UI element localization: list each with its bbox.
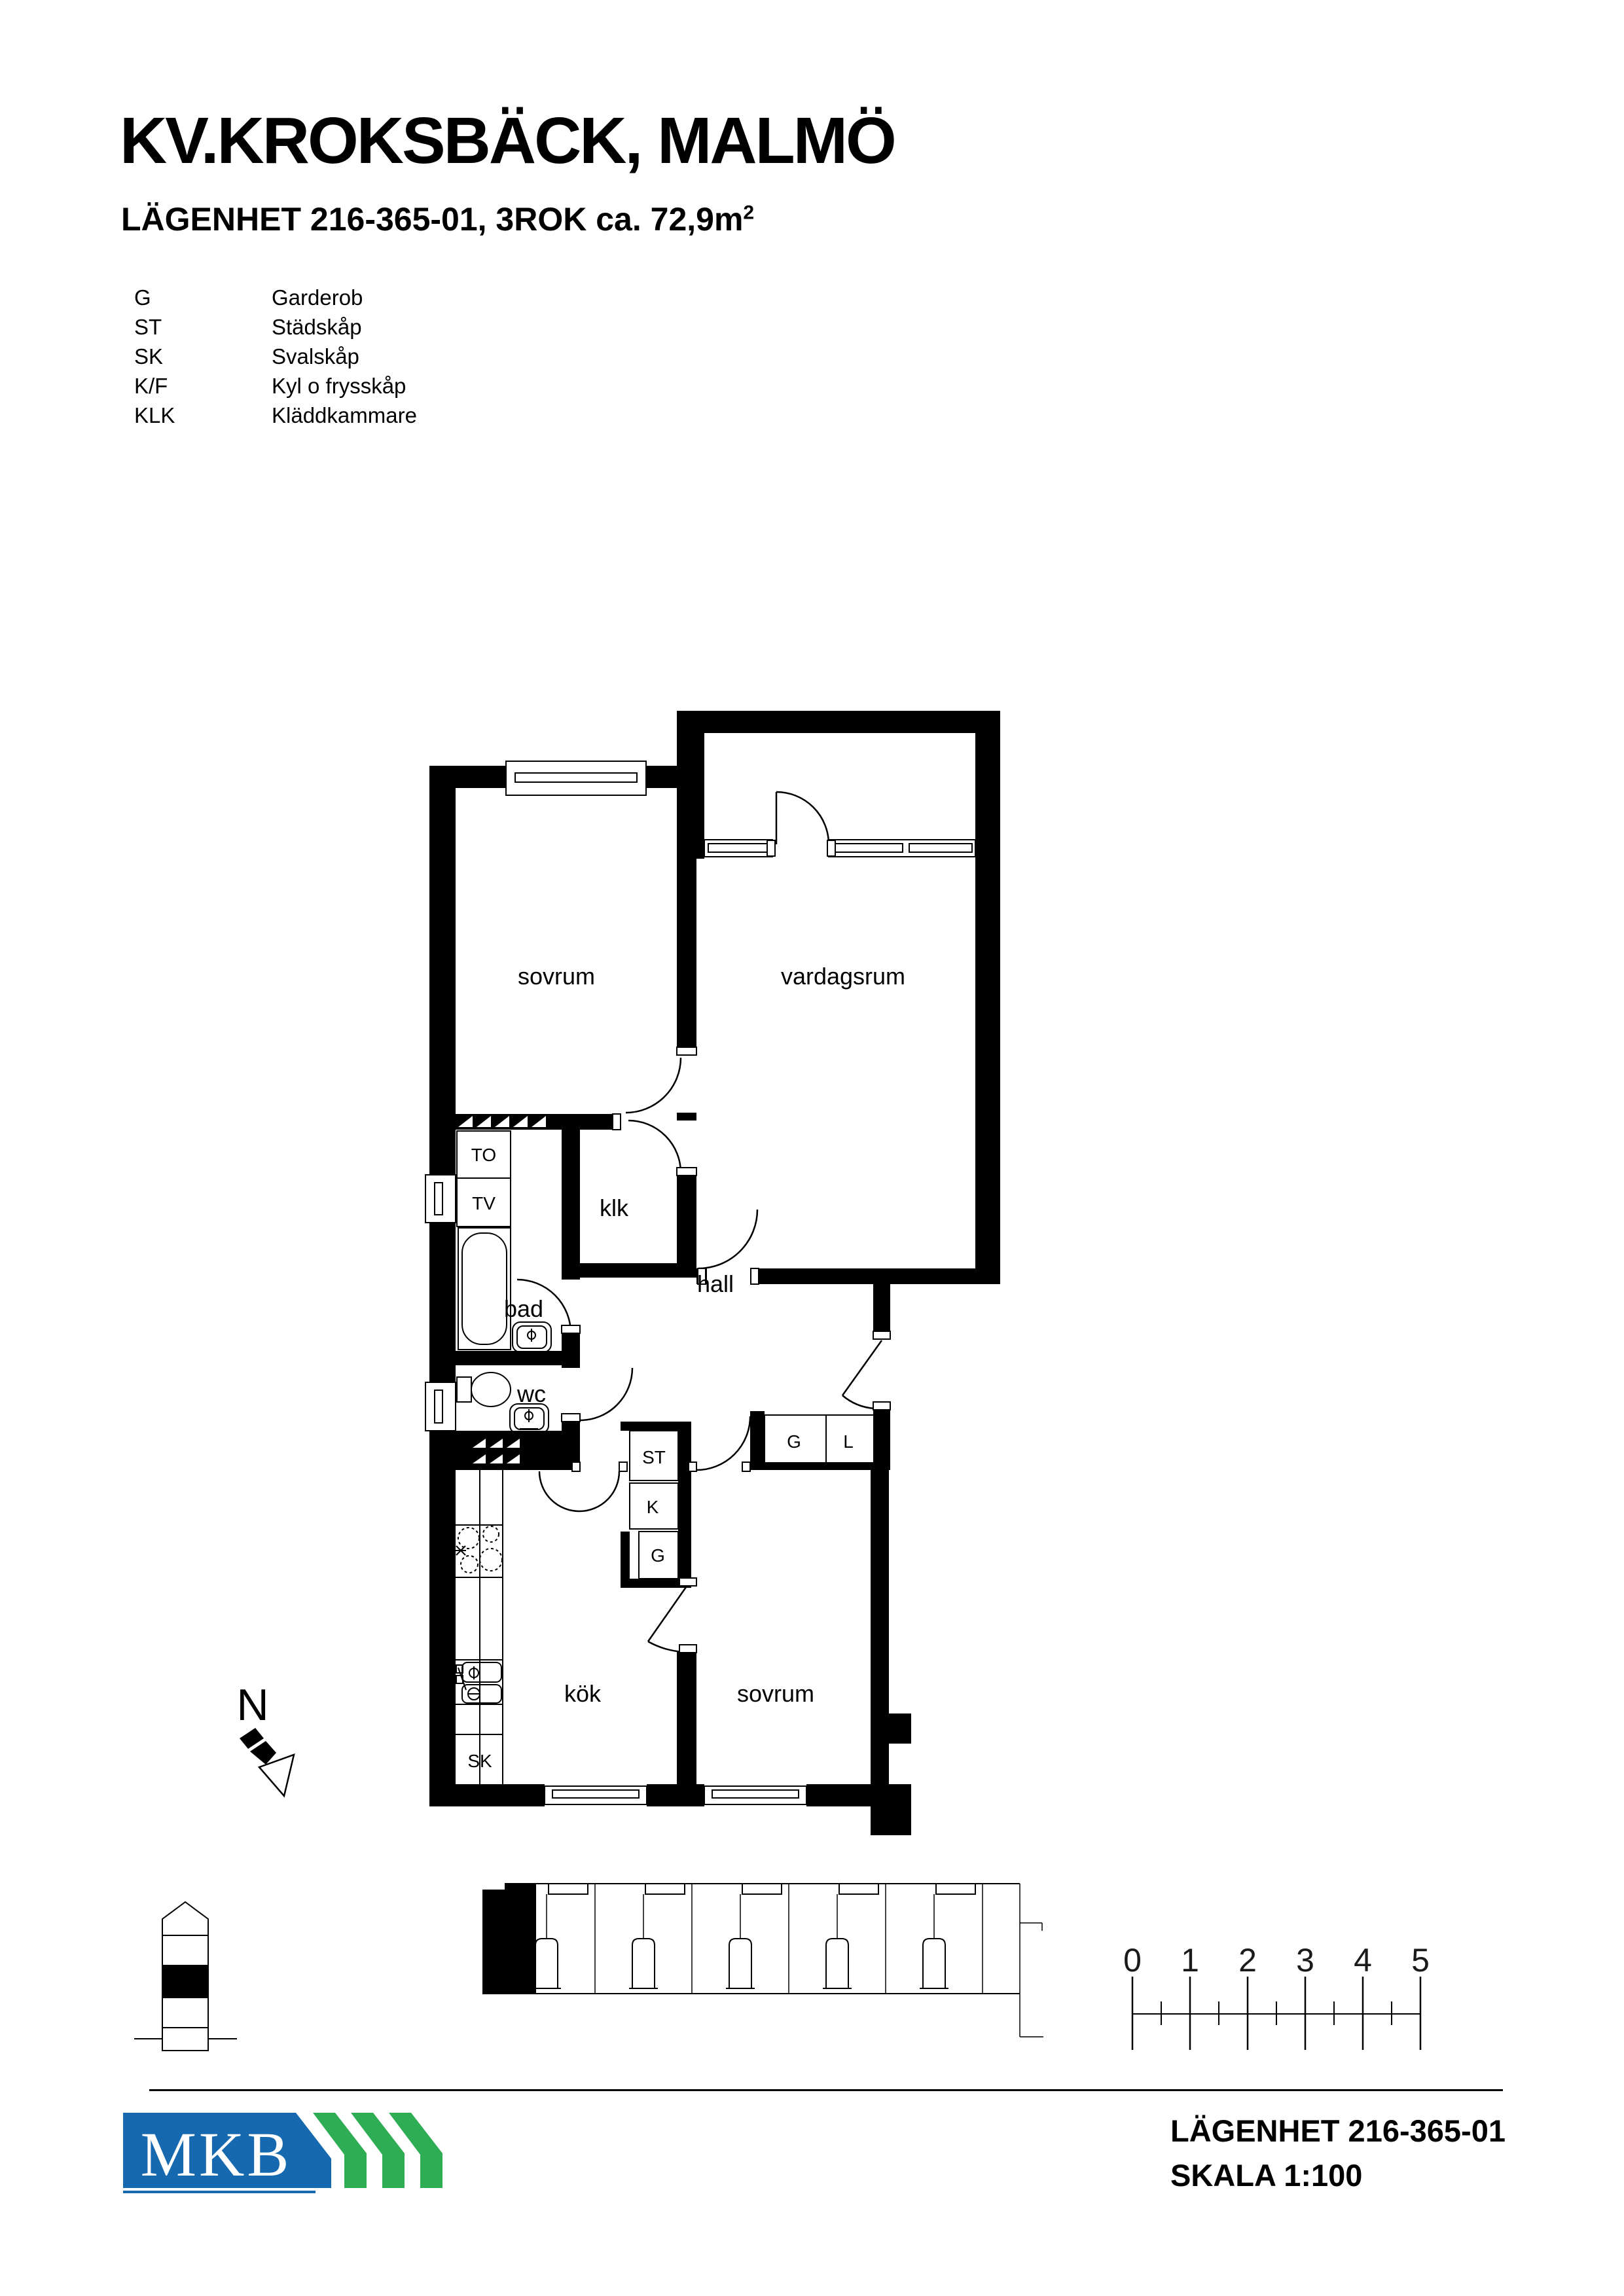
- window-sovrum2: [704, 1786, 806, 1804]
- scale-tick-1: 1: [1181, 1942, 1199, 1979]
- mkb-logo: MKB: [123, 2113, 442, 2193]
- footer-apartment: LÄGENHET 216-365-01: [1170, 2109, 1506, 2153]
- sink-wc-icon: [510, 1404, 549, 1433]
- footer-divider: [149, 2089, 1503, 2091]
- legend-abbr: G: [134, 283, 272, 312]
- floor-plan: sovrum vardagsrum klk bad hall wc kök so…: [425, 711, 1000, 1835]
- window-balcony-left: [704, 840, 772, 857]
- legend-label: Kyl o frysskåp: [272, 371, 406, 401]
- label-g-closet: G: [787, 1431, 801, 1452]
- subtitle-main: LÄGENHET 216-365-01, 3ROK ca. 72,9m: [121, 201, 743, 238]
- scale-tick-4: 4: [1354, 1942, 1372, 1979]
- scale-bar: 0 1 2 3 4 5: [1123, 1942, 1430, 2050]
- building-section: [134, 1902, 237, 2051]
- footer-text: LÄGENHET 216-365-01 SKALA 1:100: [1170, 2109, 1506, 2198]
- window-wc: [425, 1382, 456, 1431]
- window-bad: [425, 1175, 456, 1223]
- sink-kok-icon: [456, 1662, 501, 1703]
- legend-row: ST Städskåp: [134, 312, 417, 342]
- north-arrow: N: [236, 1680, 294, 1796]
- legend-row: KLK Kläddkammare: [134, 401, 417, 430]
- label-klk: klk: [600, 1194, 629, 1221]
- sink-bad-icon: [513, 1322, 551, 1352]
- legend-label: Svalskåp: [272, 342, 359, 371]
- label-hall: hall: [697, 1270, 734, 1297]
- label-to: TO: [471, 1145, 496, 1165]
- north-label: N: [236, 1680, 268, 1730]
- label-k: K: [647, 1497, 659, 1517]
- north-arrow-icon: [240, 1728, 294, 1796]
- legend-abbr: ST: [134, 312, 272, 342]
- window-sovrum1: [506, 761, 646, 795]
- label-l-closet: L: [843, 1431, 854, 1452]
- label-kok: kök: [564, 1680, 602, 1707]
- scale-tick-5: 5: [1411, 1942, 1430, 1979]
- toilet-icon: [457, 1372, 511, 1407]
- label-sovrum-2: sovrum: [737, 1680, 814, 1707]
- legend-label: Städskåp: [272, 312, 362, 342]
- label-tv: TV: [472, 1193, 496, 1213]
- mkb-logo-chevrons-icon: [313, 2113, 442, 2188]
- subtitle-superscript: 2: [743, 202, 754, 223]
- page-subtitle: LÄGENHET 216-365-01, 3ROK ca. 72,9m2: [121, 200, 754, 238]
- legend-abbr: K/F: [134, 371, 272, 401]
- legend-label: Kläddkammare: [272, 401, 417, 430]
- label-sovrum-1: sovrum: [518, 963, 595, 990]
- page: sovrum vardagsrum klk bad hall wc kök so…: [0, 0, 1624, 2296]
- scale-tick-0: 0: [1123, 1942, 1142, 1979]
- building-elevation: [483, 1884, 1043, 2037]
- legend-row: G Garderob: [134, 283, 417, 312]
- label-wc: wc: [516, 1380, 546, 1407]
- legend-row: SK Svalskåp: [134, 342, 417, 371]
- legend-abbr: KLK: [134, 401, 272, 430]
- page-title: KV.KROKSBÄCK, MALMÖ: [120, 103, 895, 179]
- mkb-logo-text: MKB: [141, 2119, 292, 2189]
- window-kok: [545, 1786, 647, 1804]
- scale-tick-3: 3: [1296, 1942, 1314, 1979]
- label-sk: SK: [467, 1751, 492, 1771]
- label-g-kitchen: G: [651, 1545, 665, 1566]
- label-bad: bad: [504, 1295, 543, 1322]
- legend-label: Garderob: [272, 283, 363, 312]
- legend-abbr: SK: [134, 342, 272, 371]
- label-st: ST: [642, 1447, 666, 1467]
- scale-tick-2: 2: [1238, 1942, 1257, 1979]
- window-balcony-right: [829, 840, 975, 857]
- legend-row: K/F Kyl o frysskåp: [134, 371, 417, 401]
- stove-symbol: [456, 1546, 466, 1555]
- bathtub-icon: [458, 1228, 511, 1350]
- legend: G Garderob ST Städskåp SK Svalskåp K/F K…: [134, 283, 417, 430]
- footer-scale: SKALA 1:100: [1170, 2153, 1506, 2198]
- label-vardagsrum: vardagsrum: [781, 963, 905, 990]
